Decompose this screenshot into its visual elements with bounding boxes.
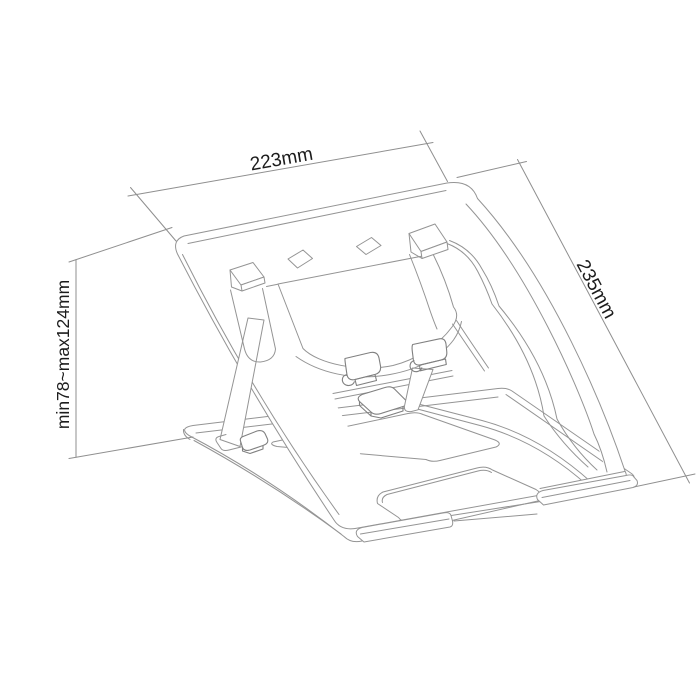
- svg-text:235mm: 235mm: [572, 257, 620, 323]
- svg-text:223mm: 223mm: [249, 144, 315, 176]
- svg-text:min78~max124mm: min78~max124mm: [53, 280, 73, 429]
